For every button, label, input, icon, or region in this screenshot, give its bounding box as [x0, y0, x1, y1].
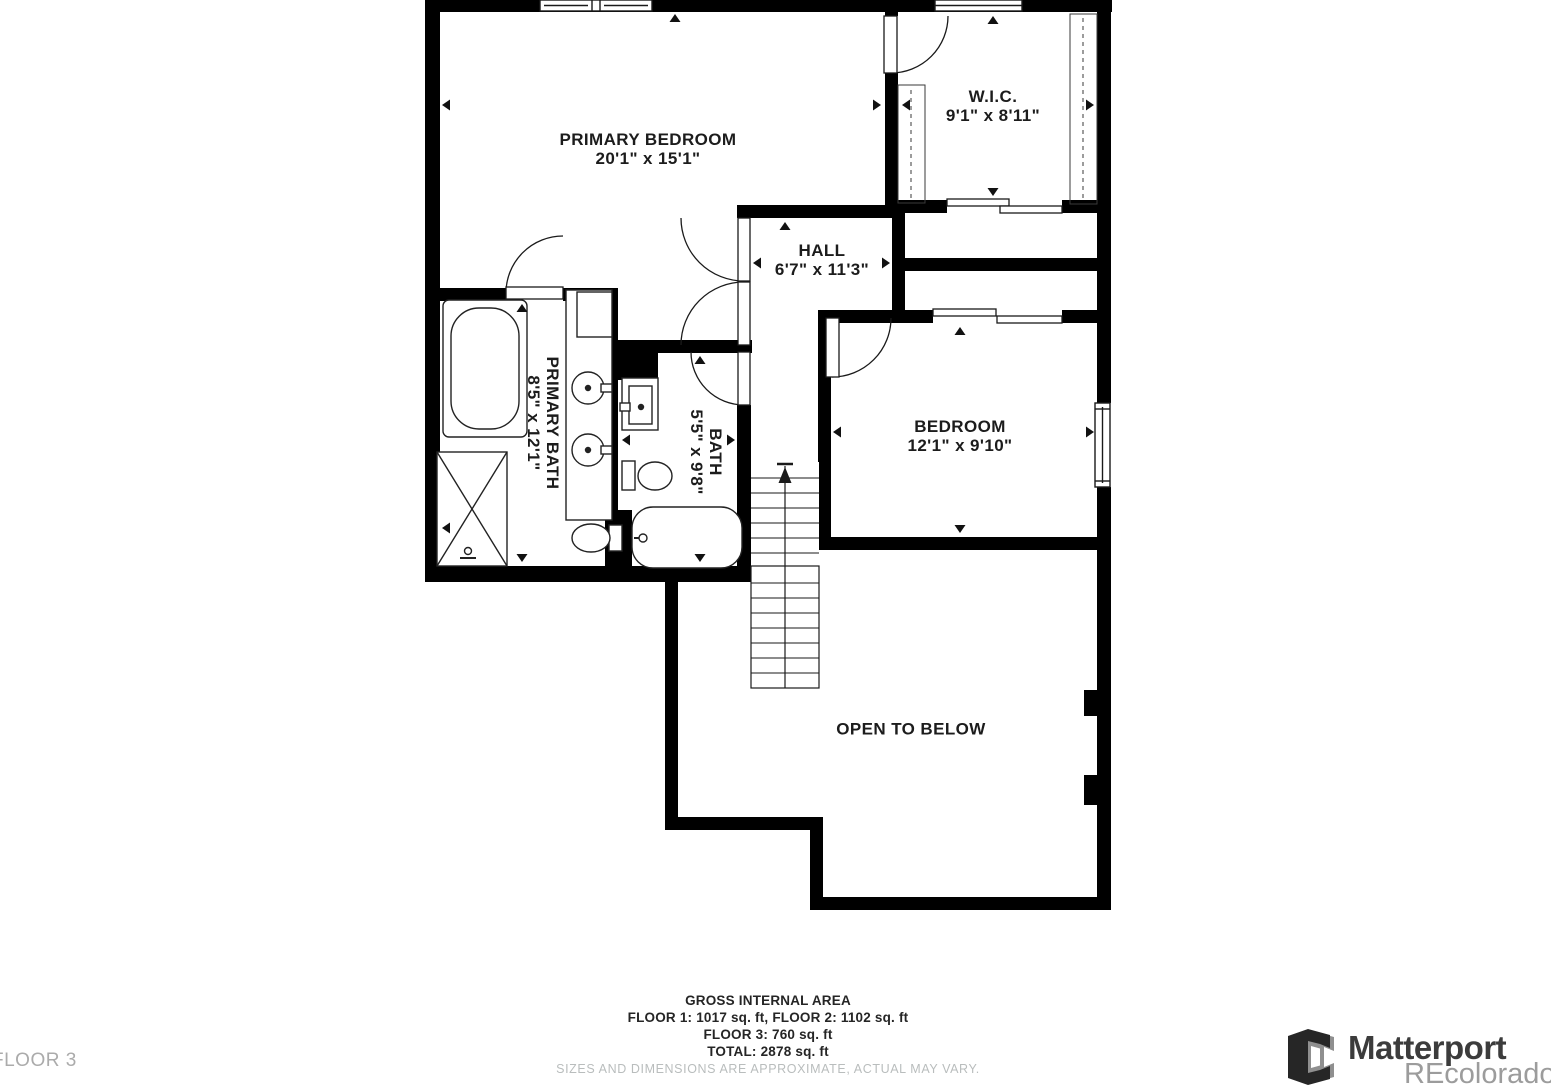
- matterport-cube-icon: [1284, 1027, 1338, 1085]
- bath-toilet: [622, 461, 672, 490]
- floor-label: FLOOR 3: [0, 1050, 77, 1072]
- room-label-primary-bath: PRIMARY BATH 8'5" x 12'1": [524, 357, 562, 490]
- room-dims: 20'1" x 15'1": [560, 149, 737, 168]
- primary-bath-vanity: [566, 290, 612, 520]
- room-name: W.I.C.: [946, 87, 1040, 106]
- wic-bypass-door: [947, 199, 1062, 213]
- primary-bath-tub: [443, 300, 527, 437]
- room-label-bedroom: BEDROOM 12'1" x 9'10": [907, 417, 1012, 455]
- room-label-open-to-below: OPEN TO BELOW: [836, 720, 985, 739]
- room-label-hall: HALL 6'7" x 11'3": [775, 241, 869, 279]
- bath-vanity: [620, 378, 658, 430]
- gross-internal-area-block: GROSS INTERNAL AREA FLOOR 1: 1017 sq. ft…: [468, 992, 1068, 1078]
- room-name: BATH: [706, 409, 725, 494]
- room-dims: 8'5" x 12'1": [524, 357, 543, 490]
- room-name: PRIMARY BATH: [543, 357, 562, 490]
- room-label-wic: W.I.C. 9'1" x 8'11": [946, 87, 1040, 125]
- room-label-primary-bedroom: PRIMARY BEDROOM 20'1" x 15'1": [560, 130, 737, 168]
- area-line-2: FLOOR 3: 760 sq. ft: [468, 1026, 1068, 1043]
- area-disclaimer: SIZES AND DIMENSIONS ARE APPROXIMATE, AC…: [468, 1061, 1068, 1078]
- primary-bath-toilet: [572, 524, 622, 552]
- primary-bath-door: [506, 236, 563, 299]
- wic-door: [884, 16, 948, 73]
- primary-bath-shower: [437, 452, 507, 566]
- room-dims: 12'1" x 9'10": [907, 436, 1012, 455]
- primary-bedroom-double-door: [681, 218, 750, 345]
- area-line-1: FLOOR 1: 1017 sq. ft, FLOOR 2: 1102 sq. …: [468, 1009, 1068, 1026]
- room-name: HALL: [775, 241, 869, 260]
- staircase: [751, 462, 819, 688]
- room-label-bath: BATH 5'5" x 9'8": [687, 409, 725, 494]
- recolorado-watermark: REcolorado: [1404, 1058, 1551, 1085]
- area-title: GROSS INTERNAL AREA: [468, 992, 1068, 1009]
- room-name: PRIMARY BEDROOM: [560, 130, 737, 149]
- bedroom-window-right: [1095, 403, 1110, 487]
- room-name: OPEN TO BELOW: [836, 720, 985, 739]
- bath-tub: [632, 507, 742, 568]
- room-dims: 6'7" x 11'3": [775, 260, 869, 279]
- branding: Matterport REcolorado: [1284, 1027, 1551, 1085]
- floorplan-page: PRIMARY BEDROOM 20'1" x 15'1" W.I.C. 9'1…: [0, 0, 1551, 1085]
- wic-window-top: [935, 0, 1022, 11]
- room-dims: 9'1" x 8'11": [946, 106, 1040, 125]
- bedroom-door: [826, 318, 891, 377]
- floorplan-drawing: [0, 0, 1551, 1085]
- double-window-top: [540, 0, 652, 11]
- bedroom-bypass-door: [933, 309, 1062, 323]
- area-line-3: TOTAL: 2878 sq. ft: [468, 1043, 1068, 1060]
- room-dims: 5'5" x 9'8": [687, 409, 706, 494]
- room-name: BEDROOM: [907, 417, 1012, 436]
